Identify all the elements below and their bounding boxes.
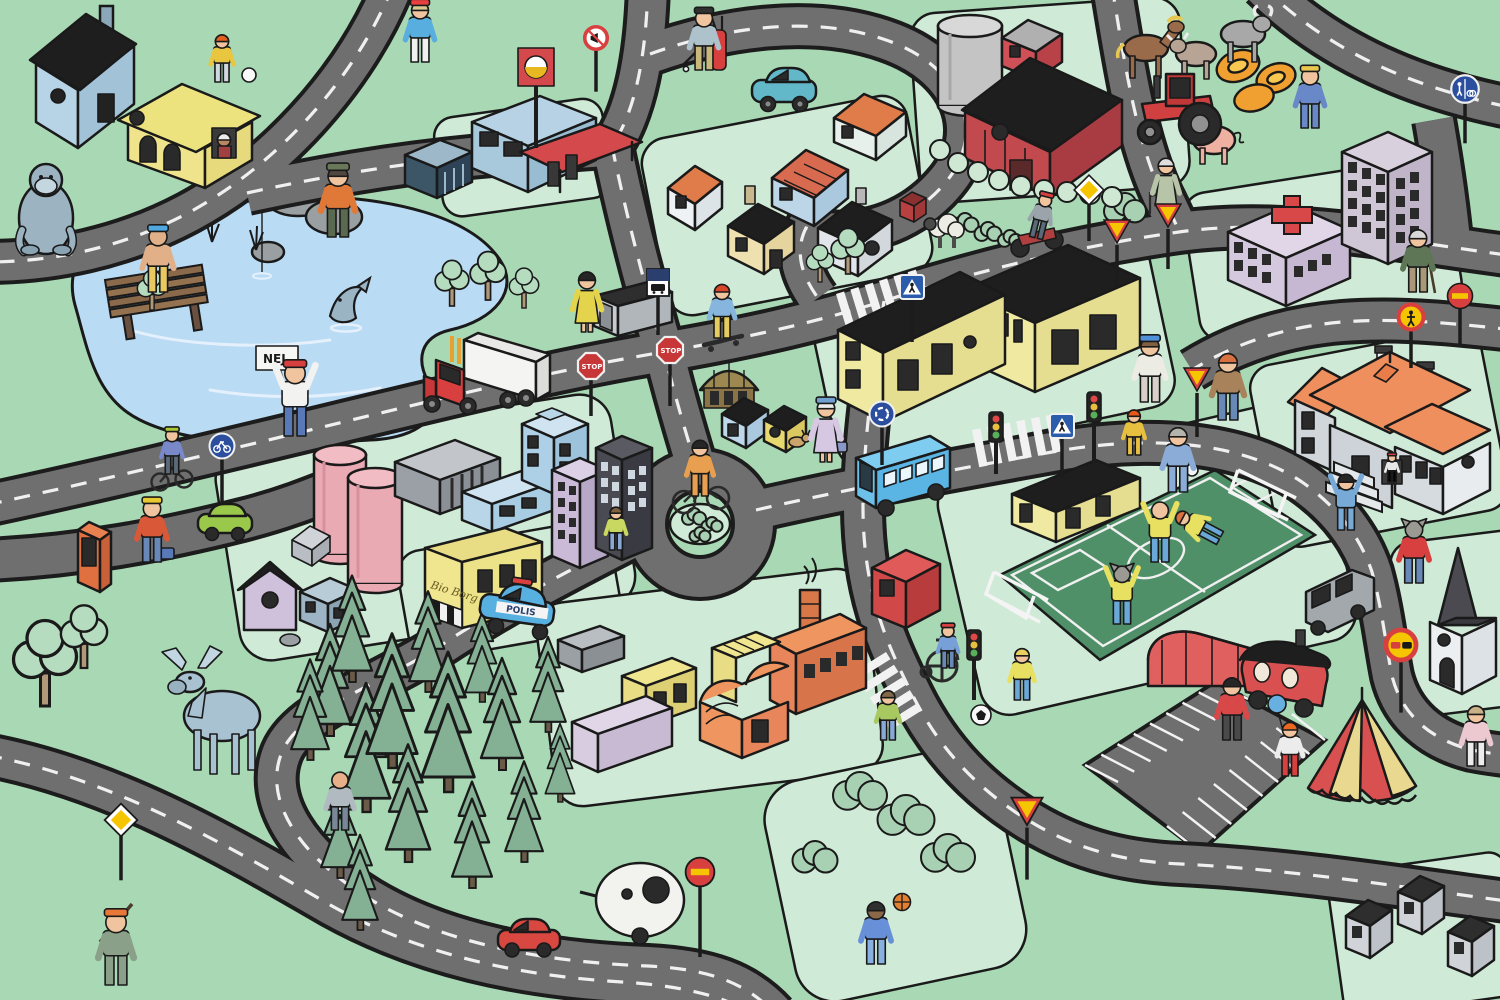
dark-tower: [596, 436, 652, 560]
hedge-bush: [1102, 187, 1122, 207]
small-rock: [280, 634, 300, 646]
hedge-bush: [1011, 176, 1031, 196]
hedge-bush: [989, 170, 1009, 190]
phone-kiosk: [78, 522, 111, 592]
golf-ball: [683, 66, 688, 71]
hedge-bush: [968, 162, 988, 182]
basketball: [894, 894, 911, 911]
stop-sign-label: STOP: [661, 347, 682, 355]
red-cube-house: [872, 550, 940, 628]
soccer-ball: [971, 705, 991, 725]
small-ball: [242, 68, 256, 82]
town-map-illustration: Bio Borg: [0, 0, 1500, 1000]
red-doghouse: [900, 192, 926, 222]
hedge-bush: [948, 153, 968, 173]
hedge-bush: [930, 140, 950, 160]
map-canvas: Bio Borg: [0, 0, 1500, 1000]
hedge-bush: [1057, 182, 1077, 202]
stop-sign-label: STOP: [582, 363, 603, 371]
